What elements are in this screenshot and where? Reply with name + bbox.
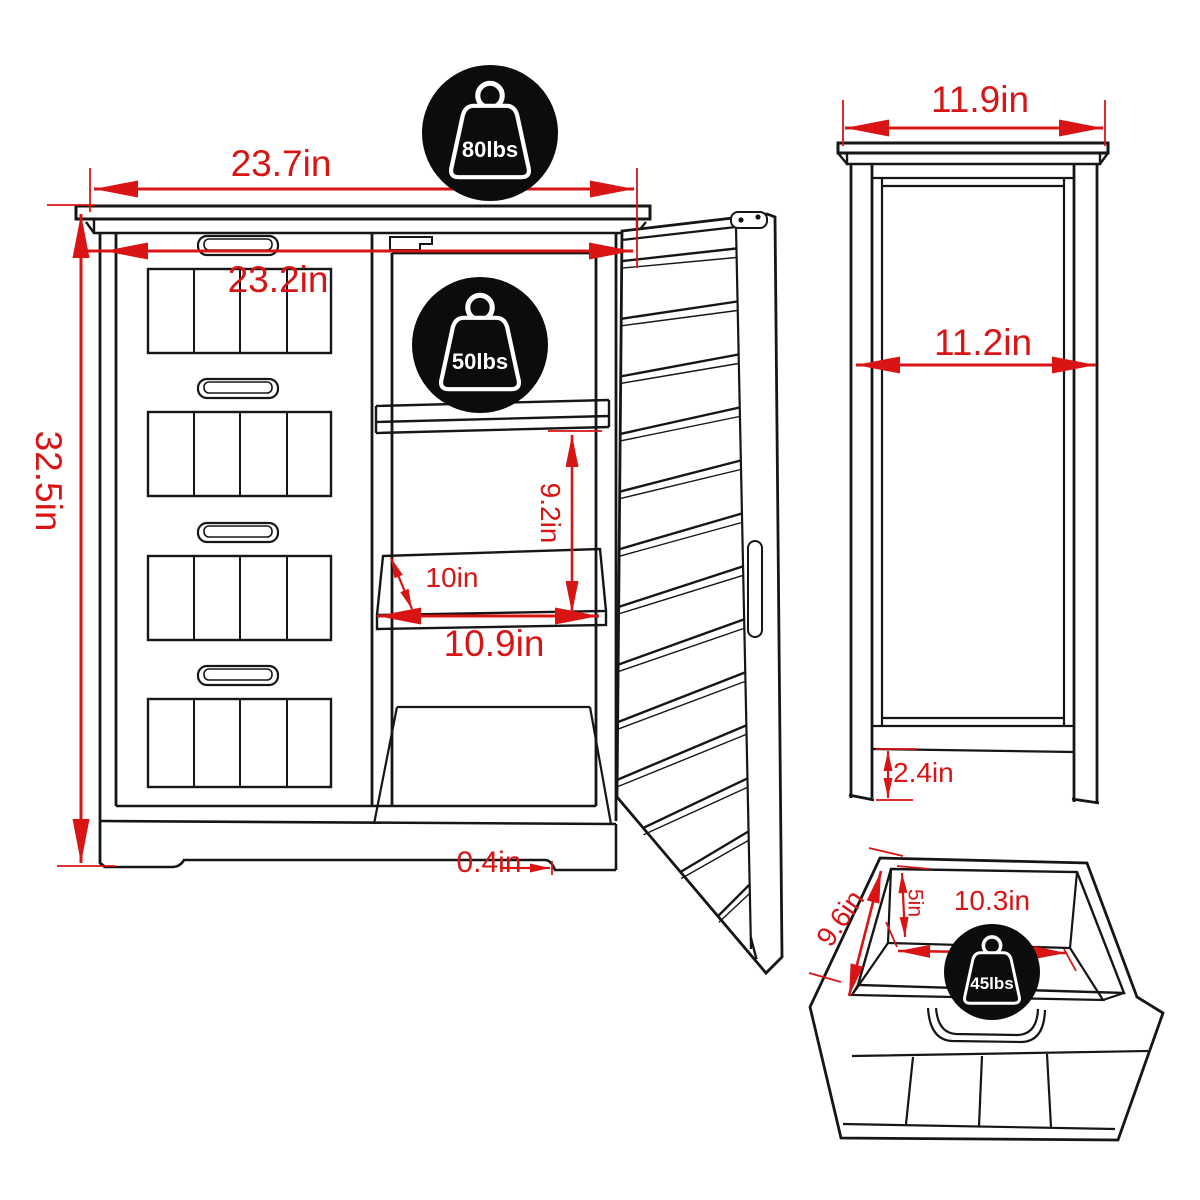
arrowhead-icon — [530, 864, 550, 873]
dim-label-front-width-top: 23.7in — [231, 143, 332, 184]
badge-capacity-label: 50lbs — [452, 349, 508, 374]
cabinet-top-board — [76, 206, 650, 219]
door-handle-groove — [748, 541, 762, 637]
dim-label-shelf-width: 10.9in — [444, 623, 545, 664]
dim-label-base-height: 0.4in — [456, 846, 521, 879]
drawer-capacity-badge: 45lbs — [944, 924, 1040, 1020]
arrowhead-icon — [590, 181, 634, 198]
side-recessed-panel — [872, 178, 1074, 752]
weight-capacity-badge-drawer: 45lbs — [944, 924, 1040, 1020]
door-hinge-bracket — [731, 212, 767, 228]
cabinet-base — [100, 806, 616, 870]
open-louvered-door — [617, 212, 782, 973]
dim-label-side-leg: 2.4in — [893, 757, 954, 788]
arrowhead-icon — [566, 435, 579, 467]
drawer-panel-slats — [194, 412, 287, 496]
front-capacity-badges: 80lbs50lbs — [412, 65, 558, 413]
drawer-panel-slats — [194, 556, 287, 640]
hinge-screw-icon — [738, 217, 743, 222]
arrowhead-icon — [566, 581, 579, 613]
weight-capacity-badge-top: 80lbs — [422, 65, 558, 201]
drawer-panel-slats — [194, 699, 287, 787]
dim-label-shelf-height: 9.2in — [535, 483, 566, 544]
product-dimension-diagram: 80lbs50lbs 45lbs 23.7in 23.2in 32.5in 9.… — [0, 0, 1200, 1200]
arrowhead-icon — [1059, 120, 1103, 137]
dim-label-side-depth-top: 11.9in — [931, 79, 1029, 120]
diagram-svg: 80lbs50lbs 45lbs 23.7in 23.2in 32.5in 9.… — [0, 0, 1200, 1200]
arrowhead-icon — [400, 589, 412, 609]
arrowhead-icon — [73, 819, 90, 863]
weight-capacity-badge-shelf: 50lbs — [412, 277, 548, 413]
arrowhead-icon — [884, 778, 893, 798]
drawer-handle-inner — [204, 669, 272, 680]
hinge-screw-icon — [755, 214, 760, 219]
arrowhead-icon — [856, 357, 900, 374]
dim-label-side-depth-inner: 11.2in — [934, 322, 1032, 363]
arrowhead-icon — [94, 181, 138, 198]
side-top-board — [838, 143, 1108, 153]
dim-label-front-height: 32.5in — [28, 431, 69, 532]
cabinet-top-molding — [86, 219, 646, 233]
drawer-handle-inner — [204, 382, 272, 393]
side-view-cabinet — [838, 143, 1108, 803]
dim-label-front-width-inner: 23.2in — [228, 259, 329, 300]
drawer-fronts — [148, 236, 331, 787]
drawer-handle-inner — [204, 526, 272, 537]
arrowhead-icon — [104, 243, 148, 260]
arrowhead-icon — [377, 608, 421, 625]
dim-label-drawer-height: 5in — [904, 889, 927, 917]
drawer-handle-inner — [204, 239, 272, 250]
door-latch — [390, 237, 432, 250]
side-stiles-legs — [849, 164, 1099, 803]
arrowhead-icon — [884, 751, 893, 771]
dim-label-drawer-width: 10.3in — [954, 885, 1030, 916]
side-top-molding — [838, 153, 1108, 164]
badge-capacity-label: 45lbs — [970, 974, 1013, 993]
arrowhead-icon — [73, 214, 90, 258]
dim-label-shelf-depth: 10in — [426, 562, 479, 593]
arrowhead-icon — [845, 120, 889, 137]
badge-capacity-label: 80lbs — [462, 137, 518, 162]
